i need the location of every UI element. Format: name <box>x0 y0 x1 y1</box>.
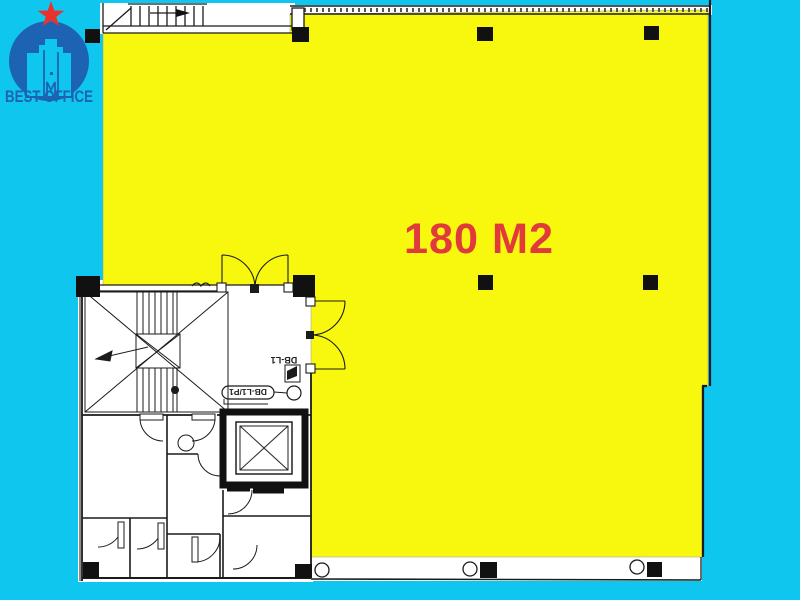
db-circle-symbol <box>287 386 301 400</box>
db-label: DB-L1 <box>271 355 298 365</box>
area-size-label: 180 M2 <box>404 215 554 263</box>
brand-text: BEST OFFICE <box>5 87 93 106</box>
db-circuit-label: DB-L1/P1 <box>229 387 267 397</box>
elevator <box>223 412 305 491</box>
floorplan-image: DB-L1 DB-L1/P1 180 M2 BEST OFFICE <box>0 0 800 600</box>
